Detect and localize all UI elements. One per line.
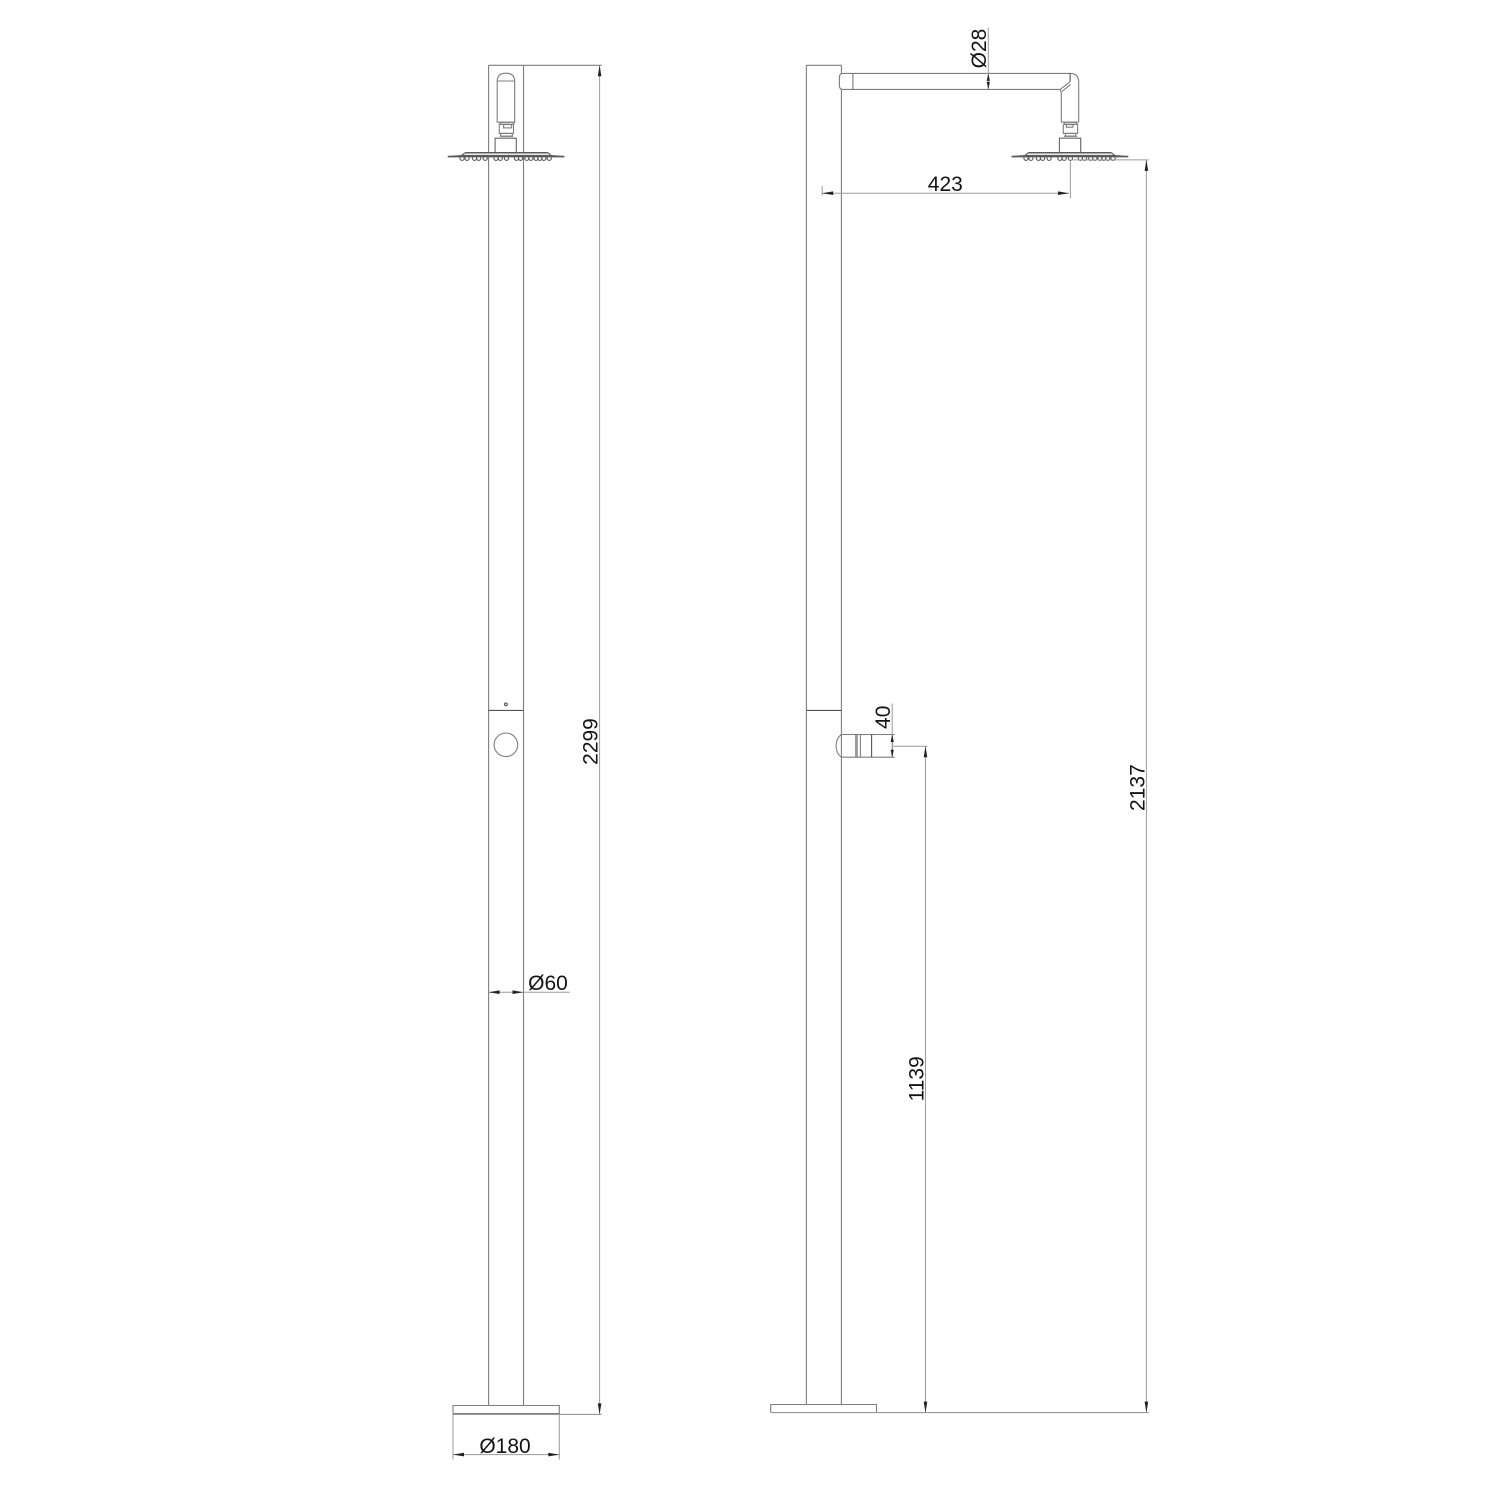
svg-text:2137: 2137	[1126, 764, 1149, 811]
svg-text:Ø60: Ø60	[528, 972, 568, 995]
svg-text:Ø180: Ø180	[479, 1435, 530, 1458]
svg-text:2299: 2299	[579, 718, 602, 765]
svg-text:1139: 1139	[906, 1056, 929, 1101]
svg-text:40: 40	[872, 706, 895, 729]
svg-text:423: 423	[928, 173, 963, 196]
svg-text:Ø28: Ø28	[968, 29, 991, 69]
